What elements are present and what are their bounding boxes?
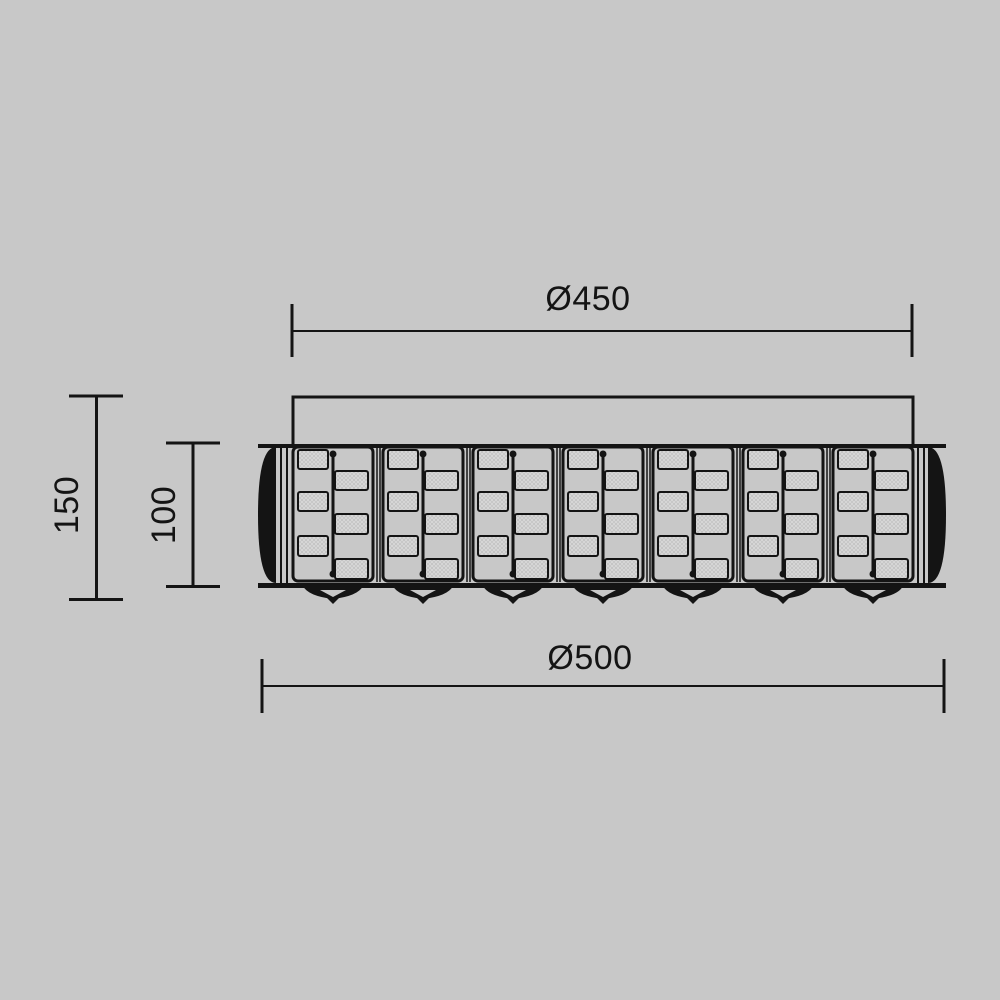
dimension-label-overall-height: 150 <box>48 476 86 534</box>
drawing-canvas: Ø450 Ø500 150 100 <box>0 0 1000 1000</box>
dimension-label-body-height: 100 <box>145 486 183 544</box>
dimension-label-top-diameter: Ø450 <box>545 280 630 318</box>
dimension-label-bottom-diameter: Ø500 <box>547 639 632 677</box>
lamp-technical-drawing: Ø450 Ø500 150 100 <box>0 0 1000 1000</box>
